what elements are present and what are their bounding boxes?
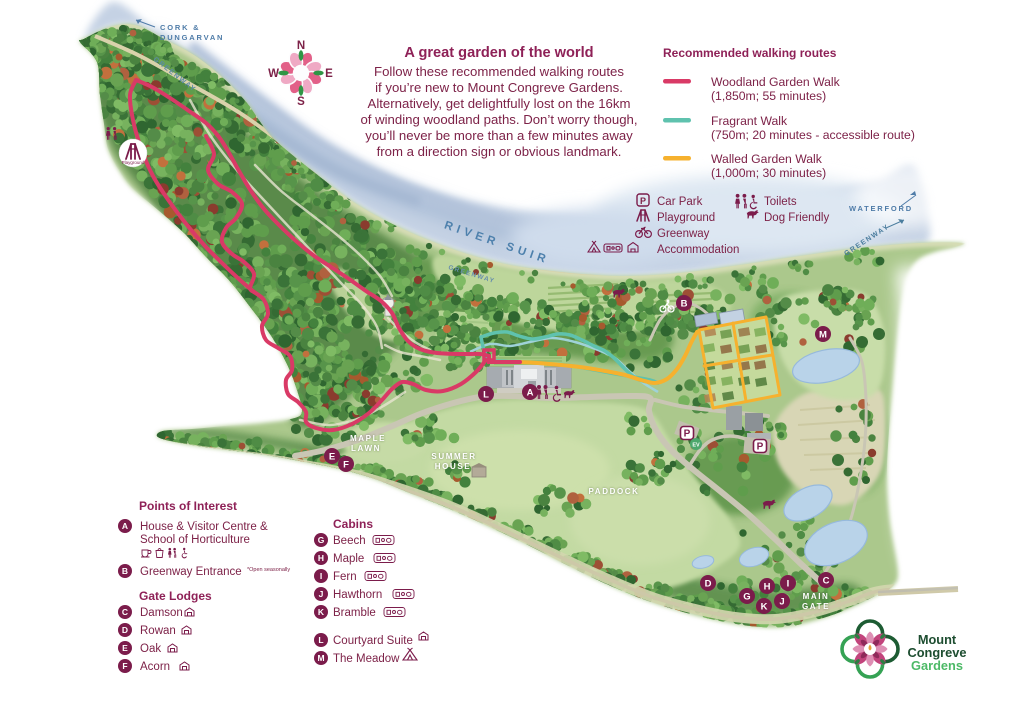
svg-text:MAIN: MAIN: [803, 592, 830, 601]
svg-text:K: K: [318, 607, 325, 617]
svg-text:Maple: Maple: [333, 553, 364, 565]
svg-text:Gardens: Gardens: [911, 658, 963, 673]
svg-text:G: G: [743, 591, 750, 602]
svg-text:(1,000m; 30 minutes): (1,000m; 30 minutes): [711, 166, 826, 180]
svg-text:Beech: Beech: [333, 535, 366, 547]
svg-text:LAWN: LAWN: [351, 444, 381, 453]
svg-text:A great garden of the world: A great garden of the world: [404, 45, 593, 61]
svg-text:Accommodation: Accommodation: [657, 244, 739, 256]
svg-text:Cabins: Cabins: [333, 517, 373, 531]
svg-text:Fern: Fern: [333, 571, 357, 583]
svg-text:Toilets: Toilets: [764, 196, 797, 208]
svg-text:from a direction sign or obvio: from a direction sign or obvious landmar…: [377, 144, 622, 159]
svg-text:B: B: [681, 298, 688, 309]
svg-text:Fragrant Walk: Fragrant Walk: [711, 114, 788, 128]
svg-text:A: A: [122, 521, 128, 531]
svg-text:Oak: Oak: [140, 643, 161, 655]
svg-text:E: E: [329, 451, 335, 462]
svg-text:S: S: [297, 96, 305, 108]
svg-text:K: K: [761, 601, 768, 612]
svg-text:A: A: [527, 387, 534, 398]
svg-text:E: E: [122, 643, 128, 653]
svg-text:of winding woodland paths. Don: of winding woodland paths. Don’t worry t…: [360, 112, 637, 127]
svg-text:Acorn: Acorn: [140, 661, 170, 673]
svg-text:P: P: [757, 442, 764, 453]
svg-text:J: J: [779, 596, 784, 607]
svg-text:D: D: [122, 625, 128, 635]
svg-text:P: P: [640, 196, 646, 206]
svg-text:PADDOCK: PADDOCK: [588, 487, 639, 496]
svg-text:Gate Lodges: Gate Lodges: [139, 589, 212, 603]
svg-text:EV: EV: [692, 442, 700, 448]
svg-text:W: W: [268, 68, 279, 80]
svg-text:DUNGARVAN: DUNGARVAN: [160, 33, 224, 42]
svg-text:*Open seasonally: *Open seasonally: [247, 567, 290, 573]
svg-text:J: J: [319, 589, 324, 599]
svg-text:Damson: Damson: [140, 607, 183, 619]
svg-text:Greenway: Greenway: [657, 228, 710, 240]
svg-text:Recommended walking routes: Recommended walking routes: [663, 46, 837, 60]
svg-text:M: M: [819, 329, 827, 340]
svg-text:MAPLE: MAPLE: [350, 434, 386, 443]
svg-text:L: L: [318, 635, 323, 645]
svg-text:N: N: [297, 40, 305, 52]
svg-text:F: F: [343, 459, 349, 470]
svg-text:I: I: [320, 571, 322, 581]
svg-text:Courtyard Suite: Courtyard Suite: [333, 635, 413, 647]
svg-text:F: F: [122, 661, 127, 671]
svg-text:Car Park: Car Park: [657, 196, 703, 208]
svg-text:The Meadow: The Meadow: [333, 653, 400, 665]
svg-text:P: P: [684, 429, 691, 440]
svg-text:Playground: Playground: [657, 212, 715, 224]
svg-text:House & Visitor Centre &: House & Visitor Centre &: [140, 521, 268, 533]
svg-text:Follow these recommended walki: Follow these recommended walking routes: [374, 64, 624, 79]
svg-text:Woodland Garden Walk: Woodland Garden Walk: [711, 75, 841, 89]
svg-text:H: H: [764, 581, 771, 592]
svg-text:I: I: [787, 578, 790, 589]
svg-text:L: L: [483, 389, 489, 400]
svg-text:B: B: [122, 566, 128, 576]
svg-text:you’ll never be more than a fe: you’ll never be more than a few minutes …: [365, 128, 633, 143]
svg-text:(1,850m; 55 minutes): (1,850m; 55 minutes): [711, 89, 826, 103]
svg-text:Bramble: Bramble: [333, 607, 376, 619]
svg-text:School of Horticulture: School of Horticulture: [140, 534, 250, 546]
svg-text:Points of Interest: Points of Interest: [139, 499, 237, 513]
svg-text:Dog Friendly: Dog Friendly: [764, 212, 829, 224]
svg-text:GATE: GATE: [802, 602, 830, 611]
svg-text:H: H: [318, 553, 324, 563]
svg-text:C: C: [122, 607, 128, 617]
svg-text:if you’re new to Mount Congrev: if you’re new to Mount Congreve Gardens.: [375, 80, 623, 95]
svg-text:E: E: [325, 68, 333, 80]
svg-text:Playground: Playground: [122, 160, 145, 165]
svg-text:M: M: [317, 653, 324, 663]
svg-text:D: D: [705, 578, 712, 589]
svg-text:G: G: [318, 535, 325, 545]
svg-text:WATERFORD: WATERFORD: [849, 204, 913, 213]
svg-text:Rowan: Rowan: [140, 625, 176, 637]
svg-text:Walled Garden Walk: Walled Garden Walk: [711, 152, 823, 166]
svg-text:SUMMER: SUMMER: [431, 452, 476, 461]
svg-text:Hawthorn: Hawthorn: [333, 589, 382, 601]
svg-text:(750m; 20 minutes - accessible: (750m; 20 minutes - accessible route): [711, 128, 915, 142]
svg-text:HOUSE: HOUSE: [435, 462, 471, 471]
svg-text:Greenway Entrance: Greenway Entrance: [140, 566, 242, 578]
svg-text:CORK &: CORK &: [160, 23, 200, 32]
svg-text:C: C: [823, 575, 830, 586]
svg-text:Alternatively, get delightfull: Alternatively, get delightfully lost on …: [368, 96, 631, 111]
